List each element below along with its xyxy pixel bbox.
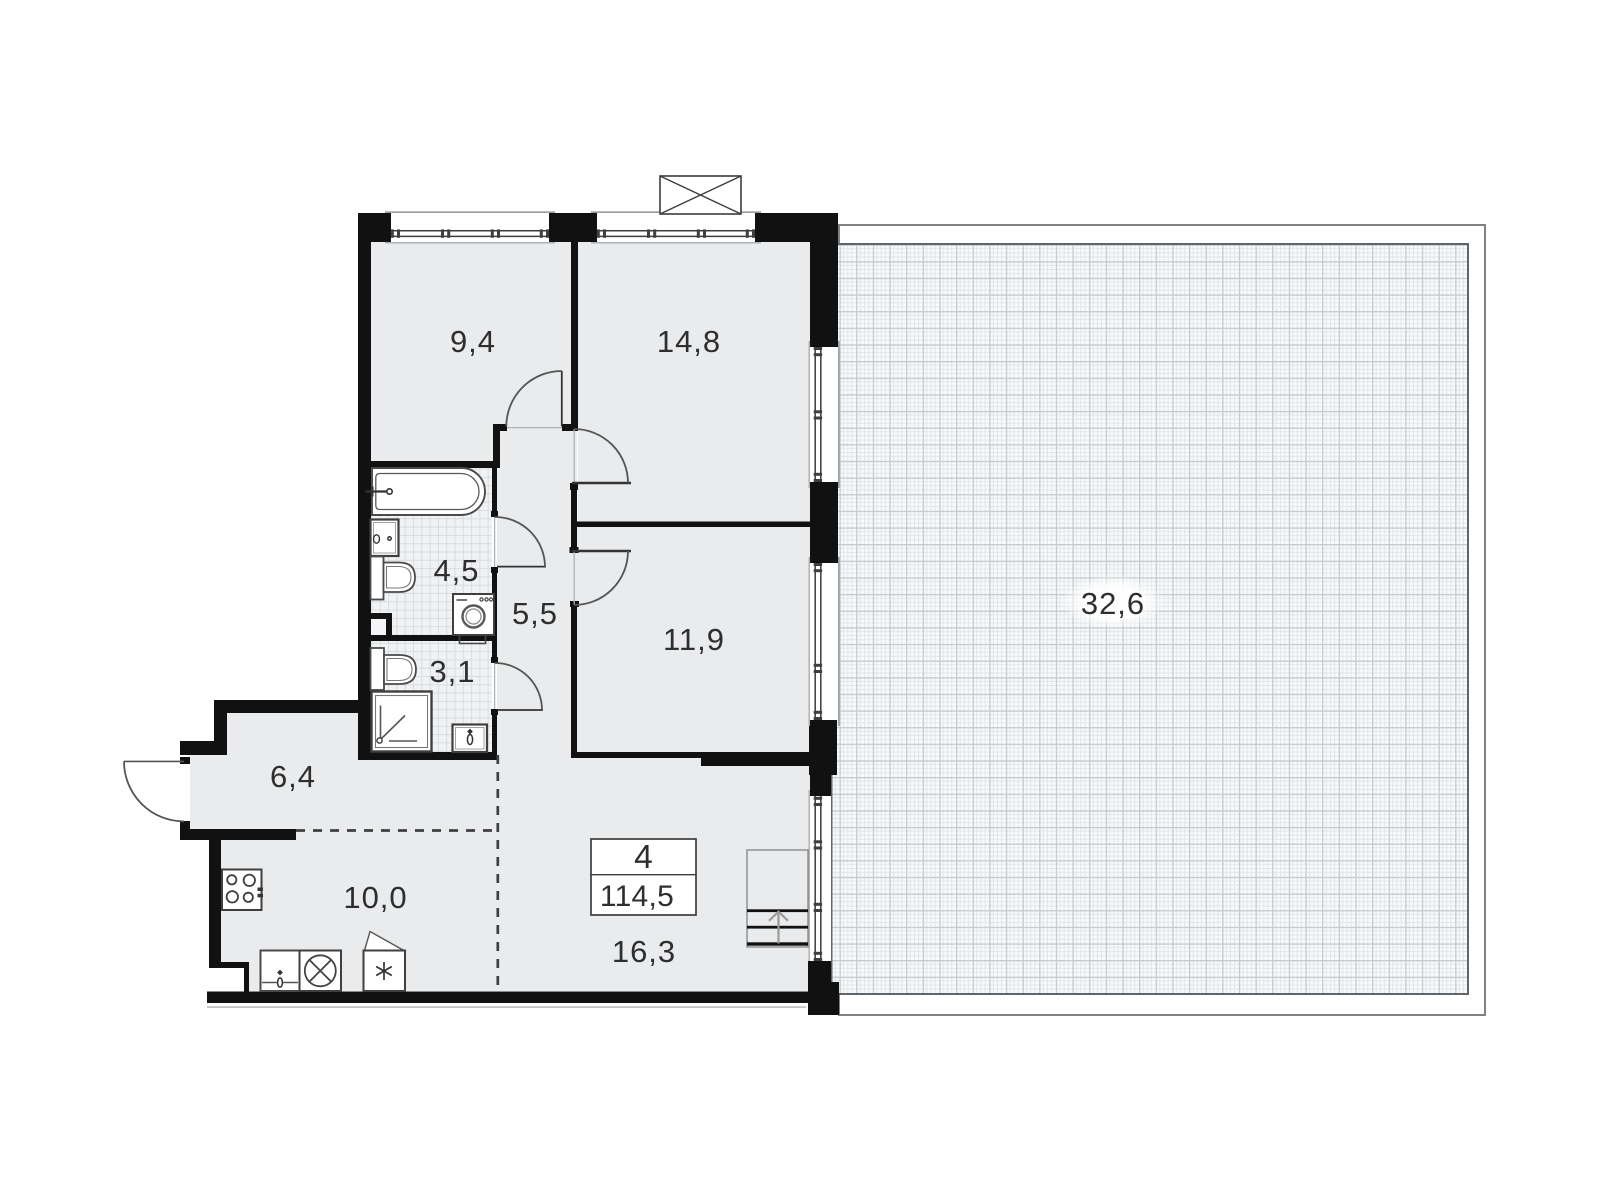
svg-text:114,5: 114,5 [600,880,674,913]
svg-text:16,3: 16,3 [612,934,676,969]
svg-text:14,8: 14,8 [657,324,721,359]
svg-text:32,6: 32,6 [1081,586,1145,621]
svg-text:6,4: 6,4 [270,759,316,794]
svg-text:11,9: 11,9 [663,622,725,657]
svg-text:4,5: 4,5 [433,553,479,588]
svg-text:10,0: 10,0 [343,880,407,915]
svg-text:3,1: 3,1 [429,654,475,689]
svg-text:4: 4 [634,839,653,876]
svg-text:5,5: 5,5 [512,596,558,631]
svg-text:9,4: 9,4 [450,324,496,359]
